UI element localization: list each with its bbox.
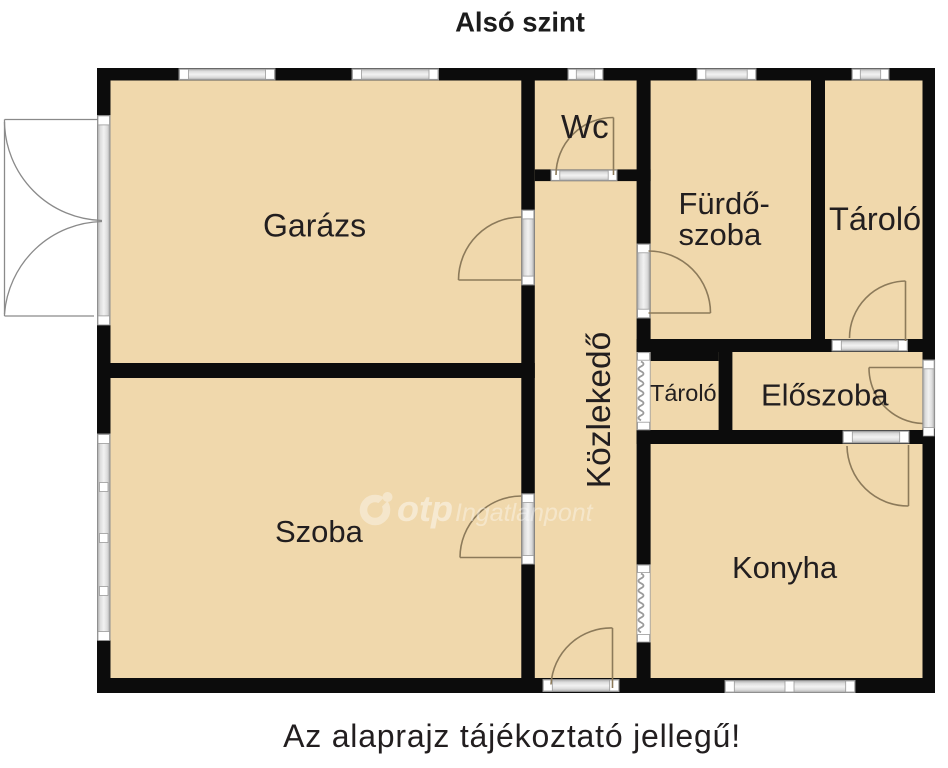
svg-text:Az alaprajz tájékoztató jelleg: Az alaprajz tájékoztató jellegű! xyxy=(283,718,741,754)
svg-text:otp: otp xyxy=(397,488,453,529)
svg-text:Előszoba: Előszoba xyxy=(761,378,889,413)
svg-text:szoba: szoba xyxy=(679,217,762,252)
svg-text:Ingatlanpont: Ingatlanpont xyxy=(455,499,594,527)
svg-text:Szoba: Szoba xyxy=(275,514,364,549)
svg-text:Wc: Wc xyxy=(561,108,609,145)
svg-text:Tároló: Tároló xyxy=(650,380,717,406)
svg-text:Közlekedő: Közlekedő xyxy=(581,332,618,488)
svg-text:Garázs: Garázs xyxy=(263,208,366,244)
svg-text:Fürdő-: Fürdő- xyxy=(679,186,770,221)
svg-text:Alsó szint: Alsó szint xyxy=(455,7,585,38)
svg-text:Konyha: Konyha xyxy=(732,550,838,585)
svg-text:Tároló: Tároló xyxy=(829,201,921,237)
